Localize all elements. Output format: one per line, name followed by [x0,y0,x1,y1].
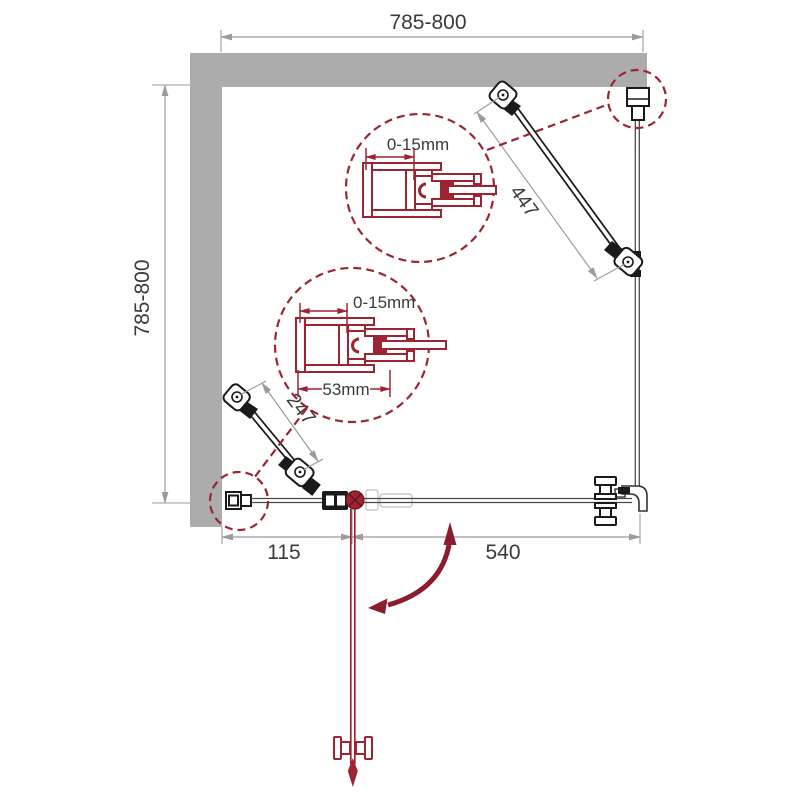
walls [190,53,647,527]
door-closed-position [364,477,632,525]
upper-adjustment-label: 0-15mm [387,135,449,154]
hinge-ghost-outline [366,490,378,510]
wall-profile-fitting-top [627,88,649,120]
detail-lower-profile: 0-15mm 53mm [296,293,446,399]
bottom-fixed-panel [226,490,412,510]
leader-upper [487,104,609,150]
door-hinge-clamp [322,491,348,510]
left-height-label: 785-800 [131,259,154,336]
door-open-position [334,509,372,787]
wall-profile-fitting-bottom [226,492,251,509]
lower-adjustment-label: 0-15mm [353,293,415,312]
door-handle-closed [595,477,616,525]
top-wall [190,53,647,87]
strut-left-label: 247 [282,389,320,429]
fixed-panel-width-label: 115 [267,541,300,564]
door-swing-arrow-icon [368,522,457,614]
door-width-label: 540 [485,541,520,564]
top-width-label: 785-800 [389,11,466,34]
dimension-strut-left: 247 [240,381,323,470]
support-strut-right: 447 [474,80,644,281]
detail-upper-profile: 0-15mm [363,135,496,217]
dimension-profile-width: 53mm [298,370,390,399]
support-strut-left: 247 [222,381,323,496]
right-glass-panel [615,88,649,511]
dimension-bottom: 115 540 [222,509,640,564]
door-handle-open [334,737,372,759]
door-bottom-tip [348,758,358,787]
dimension-top-width: 785-800 [221,11,643,52]
dimension-left-height: 785-800 [131,85,190,503]
hinge-ghost-outline-2 [380,494,412,507]
technical-drawing: 785-800 785-800 115 540 [0,0,800,800]
left-wall [190,53,222,527]
door-pivot [346,491,364,509]
plan-drawing-svg: 785-800 785-800 115 540 [0,0,800,800]
strut-right-label: 447 [505,182,542,222]
profile-width-label: 53mm [322,380,369,399]
